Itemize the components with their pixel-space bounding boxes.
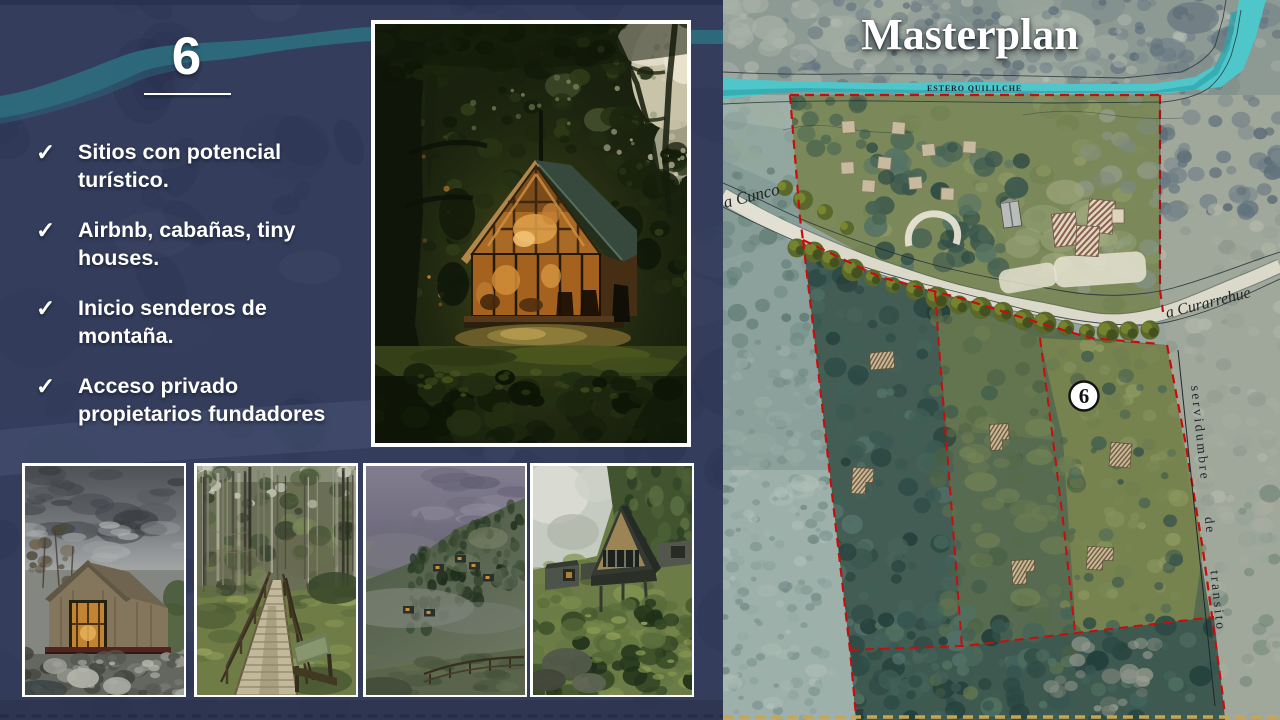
svg-text:6: 6 bbox=[1079, 384, 1090, 408]
svg-text:ESTERO QUILILCHE: ESTERO QUILILCHE bbox=[927, 84, 1022, 93]
